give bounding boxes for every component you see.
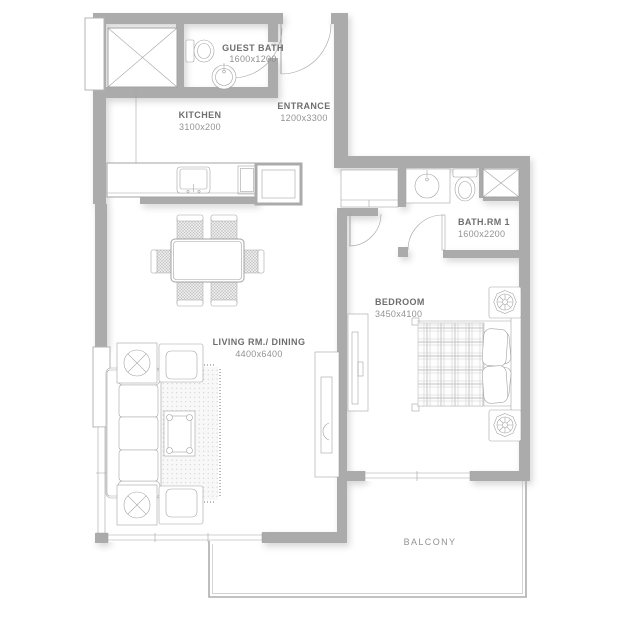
bed-pillows <box>482 328 512 404</box>
bath1-sink-icon <box>406 169 450 203</box>
window-bedroom-bottom <box>365 471 470 481</box>
bedroom-nightstand-top <box>489 287 521 318</box>
label-balcony: BALCONY <box>404 537 457 547</box>
kitchen-fridge-cabinet <box>256 164 301 204</box>
dim-living-dining: 4400x6400 <box>235 349 282 359</box>
armchair-bottom <box>159 486 203 524</box>
column-top-left <box>85 18 104 90</box>
bath1-shaft-box-icon <box>483 169 519 197</box>
dim-bedroom: 3450x4100 <box>375 309 422 319</box>
dim-entrance: 1200x3300 <box>280 113 327 123</box>
bed-headboard <box>511 315 521 414</box>
dining-chair <box>211 281 237 306</box>
window-living-bottom <box>108 533 262 542</box>
tv-console <box>315 352 339 477</box>
coffee-table <box>164 411 195 456</box>
bedroom-dresser <box>348 314 368 411</box>
dim-bath1: 1600x2200 <box>458 229 505 239</box>
wall-bath1-bottom-left <box>398 247 408 257</box>
corridor-closet <box>341 170 398 207</box>
wall-bath-entrance-lower <box>268 58 278 98</box>
bath1-toilet-icon <box>453 169 477 201</box>
window-left-living <box>96 427 107 533</box>
wall-living-bottom <box>262 532 347 543</box>
guest-bath-room <box>108 28 236 89</box>
wall-bedroom-bottom-right <box>470 471 530 481</box>
label-bath1: BATH.RM 1 <box>458 217 510 227</box>
side-table-top <box>117 343 157 383</box>
bedroom-room <box>348 287 521 441</box>
door-bath1 <box>408 215 445 250</box>
wall-top-left <box>93 13 283 24</box>
wall-left-living <box>95 204 107 347</box>
wall-kitchen-bottom <box>140 197 258 204</box>
label-kitchen: KITCHEN <box>179 110 222 120</box>
wall-living-bottom-right-vert <box>337 472 347 542</box>
side-table-bottom <box>117 485 157 525</box>
armchair-top <box>159 344 203 382</box>
wall-bedroom-stub <box>337 208 378 216</box>
label-entrance: ENTRANCE <box>277 101 330 111</box>
dim-guest-bath: 1600x1200 <box>229 54 276 64</box>
wall-bath-entrance-upper <box>268 24 278 42</box>
sofa <box>106 368 161 498</box>
door-bedroom <box>349 214 381 246</box>
floor-plan-svg: GUEST BATH 1600x1200 KITCHEN 3100x200 EN… <box>0 0 620 620</box>
dining-set <box>151 215 264 306</box>
guest-bath-toilet-icon <box>186 40 214 62</box>
label-bedroom: BEDROOM <box>375 297 425 307</box>
floor-plan-canvas: GUEST BATH 1600x1200 KITCHEN 3100x200 EN… <box>0 0 620 620</box>
label-guest-bath: GUEST BATH <box>222 43 284 53</box>
bedroom-bed <box>412 315 521 414</box>
bedroom-nightstand-bottom <box>489 410 521 441</box>
door-entrance <box>281 24 331 74</box>
dining-table <box>171 239 244 282</box>
kitchen-room <box>107 92 301 204</box>
wall-rightwing-top <box>334 156 530 168</box>
wall-entrance-right <box>334 13 348 168</box>
wall-bath1-bottom-right <box>443 250 519 258</box>
guest-bath-sink-icon <box>212 63 236 89</box>
wall-bath-kitchen <box>99 87 273 98</box>
kitchen-sink-icon <box>177 167 210 193</box>
wall-bath1-left <box>398 168 406 207</box>
dim-kitchen: 3100x200 <box>179 122 221 132</box>
dining-chair <box>177 215 203 241</box>
wall-bottom-left-corner <box>95 533 108 543</box>
shaft-box-icon <box>108 28 177 87</box>
living-dining-room <box>106 215 339 525</box>
dining-chair <box>211 215 237 241</box>
dining-chair <box>177 281 203 306</box>
label-living-dining: LIVING RM./ DINING <box>213 337 306 347</box>
